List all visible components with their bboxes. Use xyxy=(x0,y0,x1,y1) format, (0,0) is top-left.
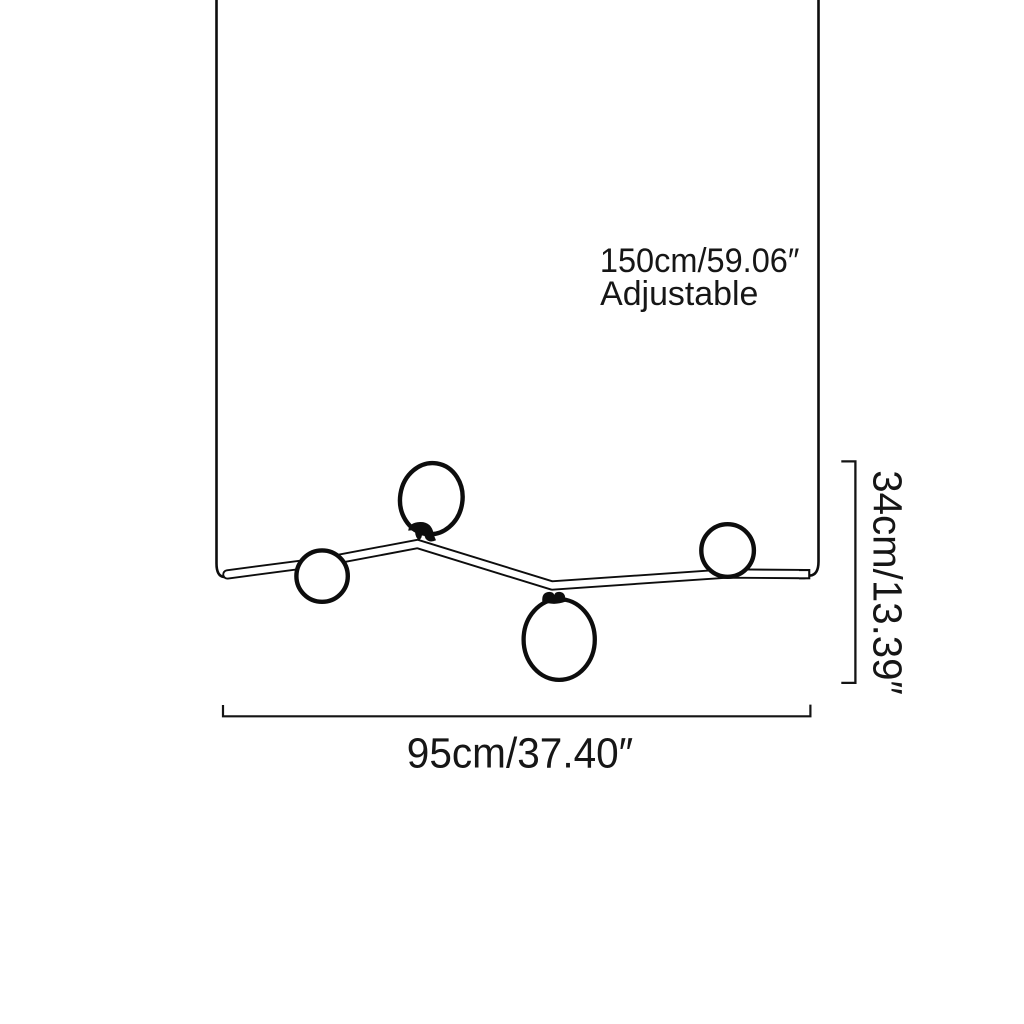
svg-text:95cm/37.40″: 95cm/37.40″ xyxy=(407,730,633,777)
svg-text:34cm/13.39″: 34cm/13.39″ xyxy=(864,470,910,695)
svg-text:Adjustable: Adjustable xyxy=(600,275,758,313)
